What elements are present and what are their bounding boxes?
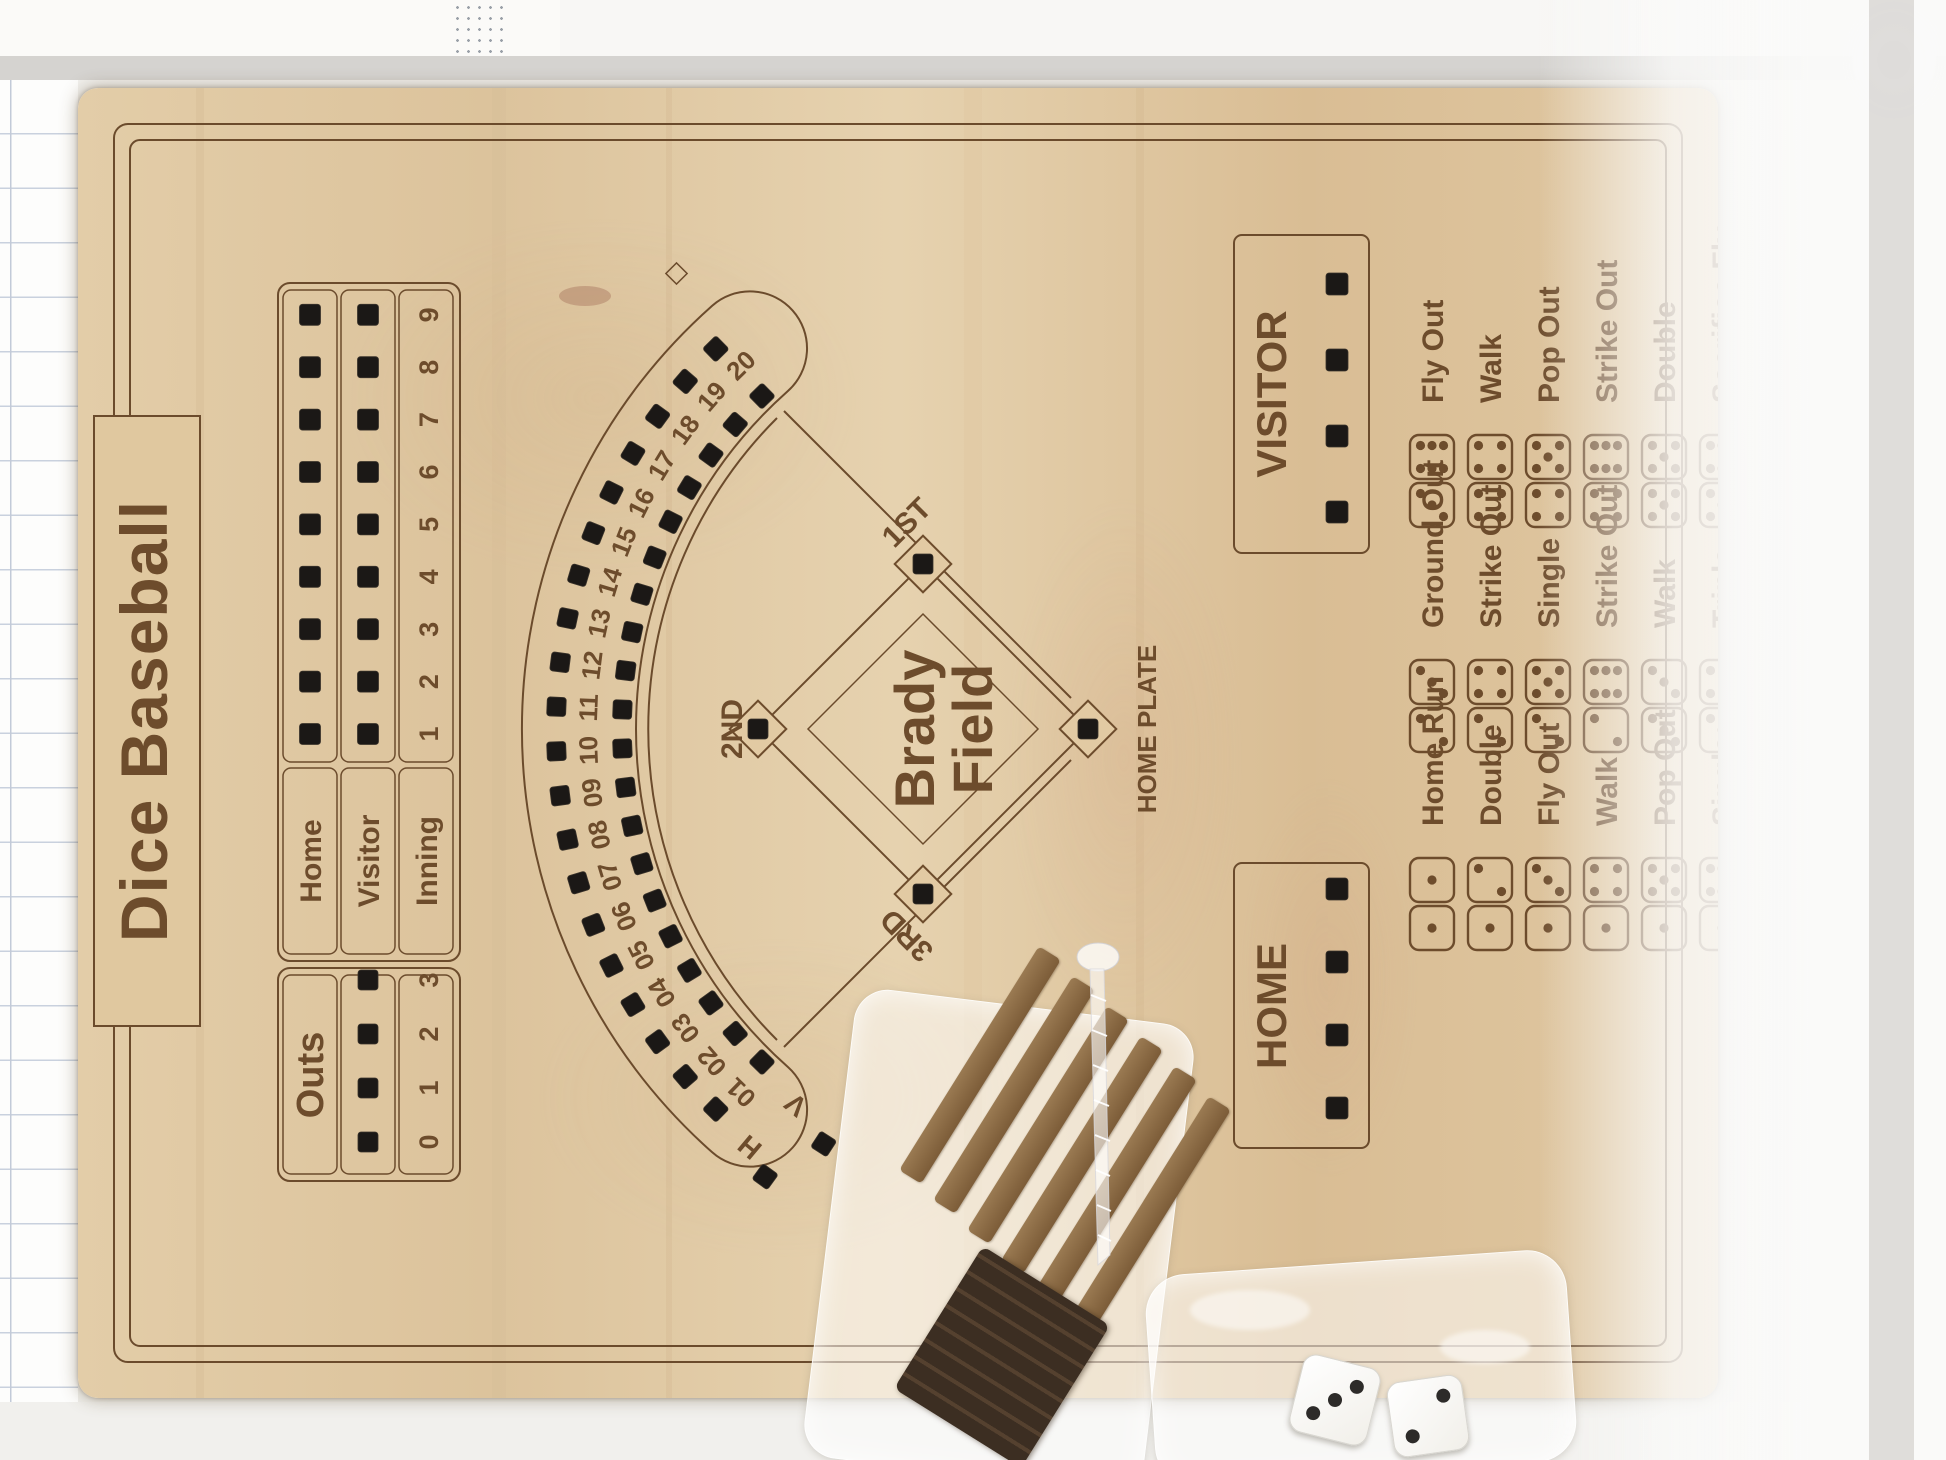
track-number: 09 (575, 777, 608, 809)
peg-hole[interactable] (300, 514, 321, 535)
home-row-label: Home (295, 819, 328, 902)
die-pip (1405, 1428, 1421, 1444)
chart-outcome-label: Walk (1475, 334, 1508, 403)
visitor-row-label: Visitor (353, 814, 386, 907)
inning-number: 8 (414, 360, 444, 375)
outs-label: Outs (290, 1032, 332, 1119)
peg-hole[interactable] (300, 357, 321, 378)
peg-hole[interactable] (1078, 719, 1098, 739)
peg-hole[interactable] (358, 1132, 378, 1152)
die-pip (1348, 1378, 1365, 1395)
peg-hole[interactable] (300, 724, 321, 745)
peg-hole[interactable] (1326, 878, 1348, 900)
inning-number: 7 (414, 412, 444, 427)
outs-number: 1 (414, 1080, 444, 1095)
peg-hole[interactable] (1326, 951, 1348, 973)
dot-grid-paper (452, 2, 504, 56)
peg-hole[interactable] (358, 514, 379, 535)
graph-paper (0, 80, 78, 1460)
track-number: 10 (573, 735, 604, 765)
chart-outcome-label: Single (1707, 736, 1718, 826)
photo-scene: Dice Baseball Outs 0123 Home Visitor (0, 0, 1946, 1460)
peg-hole[interactable] (556, 607, 579, 630)
peg-hole[interactable] (1326, 501, 1348, 523)
peg-hole[interactable] (550, 785, 571, 806)
peg-hole[interactable] (547, 741, 567, 761)
field-name-line2: Field (941, 664, 1004, 795)
peg-hole[interactable] (1326, 273, 1348, 295)
chart-outcome-label: Fly Out (1417, 300, 1450, 403)
home-box-label: HOME (1248, 943, 1295, 1069)
peg-hole[interactable] (1326, 1097, 1348, 1119)
peg-hole[interactable] (748, 719, 768, 739)
chart-outcome-label: Strike Out (1475, 485, 1508, 628)
visitor-box-label: VISITOR (1248, 310, 1295, 477)
table-edge-strip (0, 56, 1946, 80)
bag-highlight (1190, 1290, 1310, 1330)
inning-numbers: 123456789 (414, 307, 444, 741)
inning-number: 2 (414, 674, 444, 689)
peg-hole[interactable] (556, 828, 579, 851)
peg-hole[interactable] (358, 1024, 378, 1044)
peg-hole[interactable] (300, 304, 321, 325)
peg-hole[interactable] (358, 970, 378, 990)
peg-hole[interactable] (358, 409, 379, 430)
track-number: 12 (575, 649, 608, 681)
field-name-line1: Brady (883, 650, 946, 809)
peg-hole[interactable] (358, 724, 379, 745)
die-pip (1305, 1405, 1322, 1422)
peg-hole[interactable] (358, 1078, 378, 1098)
white-die-2[interactable] (1385, 1373, 1471, 1459)
chart-outcome-label: Double (1649, 301, 1682, 403)
chart-outcome-label: Single (1533, 538, 1566, 628)
peg-hole[interactable] (300, 409, 321, 430)
peg-hole[interactable] (358, 671, 379, 692)
chart-outcome-label: Ground Out (1417, 460, 1450, 628)
chart-outcome-label: Strike Out (1591, 485, 1624, 628)
peg-hole[interactable] (913, 884, 933, 904)
inning-number: 5 (414, 517, 444, 532)
peg-hole[interactable] (358, 566, 379, 587)
outs-number: 3 (414, 972, 444, 987)
peg-hole[interactable] (615, 777, 636, 798)
inning-number: 1 (414, 726, 444, 741)
peg-hole[interactable] (613, 700, 633, 720)
board-title: Dice Baseball (107, 500, 181, 942)
die-pip (1435, 1388, 1451, 1404)
peg-hole[interactable] (1326, 425, 1348, 447)
peg-hole[interactable] (300, 671, 321, 692)
chart-outcome-label: Triple (1707, 548, 1718, 628)
peg-hole[interactable] (300, 619, 321, 640)
track-number: 08 (581, 818, 616, 853)
peg-hole[interactable] (615, 660, 636, 681)
bag-highlight (1440, 1330, 1530, 1364)
peg-hole[interactable] (613, 739, 633, 759)
peg-hole[interactable] (358, 619, 379, 640)
peg-hole[interactable] (550, 652, 571, 673)
table-edge-shadow (1869, 0, 1914, 1460)
peg-hole[interactable] (358, 357, 379, 378)
inning-number: 6 (414, 464, 444, 479)
inning-number: 4 (414, 569, 444, 584)
chart-outcome-label: Walk (1649, 559, 1682, 628)
peg-hole[interactable] (358, 304, 379, 325)
inning-number: 3 (414, 622, 444, 637)
die-pip (1327, 1392, 1344, 1409)
peg-hole[interactable] (1326, 349, 1348, 371)
peg-hole[interactable] (300, 462, 321, 483)
peg-hole[interactable] (1326, 1024, 1348, 1046)
peg-hole[interactable] (358, 462, 379, 483)
outs-number: 0 (414, 1134, 444, 1149)
inning-number: 9 (414, 307, 444, 322)
peg-hole[interactable] (300, 566, 321, 587)
chart-outcome-label: Pop Out (1533, 286, 1566, 403)
second-base-label: 2ND (716, 699, 749, 759)
peg-hole[interactable] (547, 697, 567, 717)
peg-hole[interactable] (621, 815, 644, 838)
chart-outcome-label: Sacrifice Fly (1707, 226, 1718, 403)
peg-hole[interactable] (621, 621, 644, 644)
outs-number: 2 (414, 1026, 444, 1041)
chart-outcome-label: Strike Out (1591, 260, 1624, 403)
peg-hole[interactable] (913, 554, 933, 574)
track-number: 13 (581, 606, 616, 641)
track-number: 11 (573, 693, 604, 722)
chart-outcome-label: Walk (1591, 757, 1624, 826)
inning-row-label: Inning (411, 816, 444, 906)
home-plate-label: HOME PLATE (1132, 645, 1162, 814)
